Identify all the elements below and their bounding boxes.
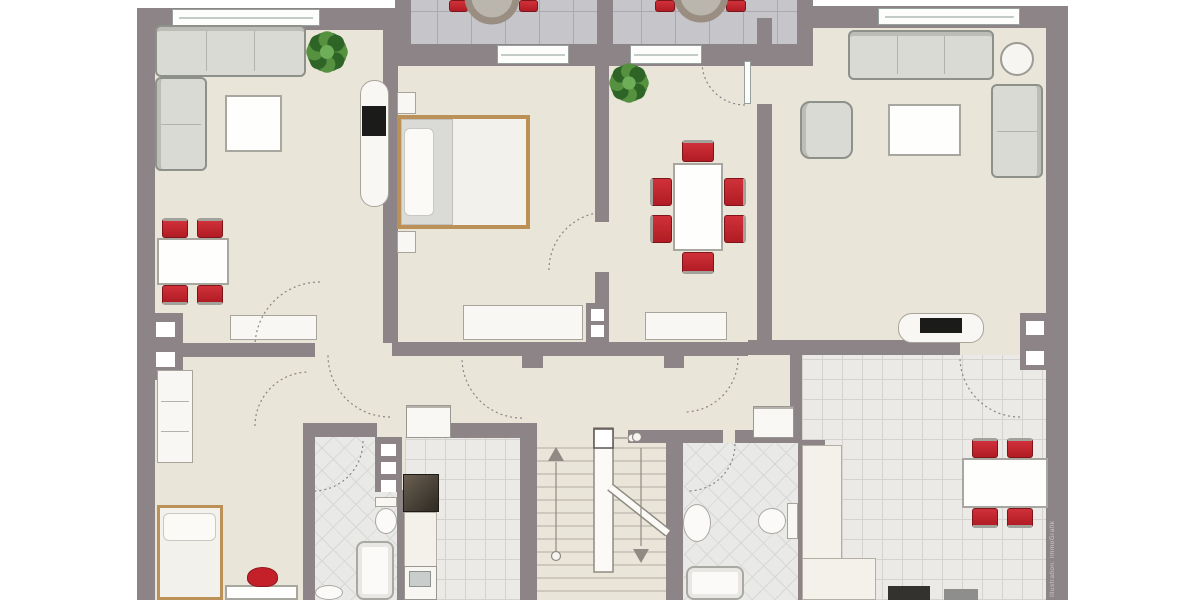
sink-bath-right: [683, 504, 711, 542]
wall-opening: [381, 462, 396, 474]
stove-left: [403, 474, 439, 512]
tv-cabinet-left: [360, 80, 389, 207]
dining-table-left: [157, 238, 229, 285]
kitchen-table-right: [962, 458, 1048, 508]
desk: [225, 585, 298, 600]
bedroom-dresser: [463, 305, 583, 340]
balcony-chair-red: [519, 0, 538, 12]
balcony-door-left: [497, 45, 569, 64]
toilet-right-bowl: [758, 508, 786, 534]
balcony-chair-red: [655, 0, 675, 12]
coffee-table-left: [225, 95, 282, 152]
wall: [303, 423, 315, 600]
chair-red: [1007, 508, 1033, 528]
wall: [664, 356, 684, 368]
wall: [595, 44, 609, 222]
chair-red: [650, 178, 672, 206]
wall: [137, 8, 155, 600]
chair-red: [197, 218, 223, 238]
counter-right-low: [802, 558, 876, 600]
chair-red: [197, 285, 223, 305]
sink-basin-left: [409, 571, 431, 587]
chair-red: [682, 140, 714, 162]
chair-red: [1007, 438, 1033, 458]
wall: [628, 430, 723, 443]
cushion-divider: [206, 31, 207, 71]
balcony-chair-red: [726, 0, 746, 12]
wall: [392, 342, 748, 356]
balcony-chair-red: [449, 0, 468, 12]
wall-opening: [156, 352, 175, 367]
appliance-gray: [944, 589, 978, 600]
cushion-divider: [161, 124, 201, 125]
sink-bath-left: [315, 585, 343, 600]
armchair: [800, 101, 853, 159]
chair-red: [724, 178, 746, 206]
window-top-left: [172, 9, 320, 26]
cushion-divider: [254, 31, 255, 71]
dining-table-center: [673, 163, 723, 251]
cushion-divider: [161, 431, 190, 432]
corner-sofa-side: [155, 77, 207, 171]
wall: [757, 18, 772, 60]
chair-red: [162, 218, 188, 238]
chair-red: [972, 508, 998, 528]
wall: [450, 423, 521, 438]
nightstand-top: [397, 92, 416, 114]
wall-opening: [591, 325, 604, 337]
wall: [748, 340, 793, 355]
wall: [757, 104, 772, 343]
bathtub-left: [356, 541, 394, 600]
loveseat-right: [991, 84, 1043, 178]
wall-opening: [381, 444, 396, 456]
watermark-text: Illustration: ImmoGrafik: [1049, 495, 1056, 597]
washing-machine-left: [406, 405, 451, 438]
single-bed-pillow: [163, 513, 216, 541]
washing-machine-right: [753, 406, 794, 438]
chair-red: [972, 438, 998, 458]
tv-right: [920, 318, 962, 333]
red-kettle: [247, 567, 278, 587]
oven-dark: [888, 586, 930, 600]
toilet-right-tank: [787, 503, 798, 539]
sideboard-dining: [645, 312, 727, 340]
chair-red: [650, 215, 672, 243]
wall-opening: [1026, 321, 1044, 335]
bed-pillow: [404, 128, 434, 216]
side-table-round: [1000, 42, 1034, 76]
wall: [303, 423, 377, 437]
wall: [522, 356, 543, 368]
floor-plan: Illustration: ImmoGrafik: [0, 0, 1200, 600]
cushion-divider: [944, 36, 945, 75]
tv-left: [362, 106, 386, 136]
corner-sofa-top: [155, 25, 306, 77]
wall-opening: [381, 480, 396, 492]
cushion-divider: [897, 36, 898, 75]
sideboard-left: [230, 315, 317, 340]
wall: [520, 423, 537, 600]
wall: [666, 432, 683, 600]
wall-opening: [591, 309, 604, 321]
tall-cabinet: [157, 370, 193, 463]
counter-left: [404, 512, 437, 568]
sofa-right: [848, 30, 994, 80]
wall-opening: [1026, 351, 1044, 365]
cushion-divider: [997, 131, 1037, 132]
window-top-right: [878, 8, 1020, 25]
coffee-table-right: [888, 104, 961, 156]
wall-opening: [156, 322, 175, 337]
toilet-left-tank: [375, 497, 397, 507]
nightstand-bottom: [397, 231, 416, 253]
chair-red: [682, 252, 714, 274]
cushion-divider: [161, 401, 190, 402]
chair-red: [724, 215, 746, 243]
shower-right: [686, 566, 744, 600]
chair-red: [162, 285, 188, 305]
toilet-left-bowl: [375, 508, 397, 534]
balcony-door-right: [630, 45, 702, 64]
door-leaf-dining: [744, 61, 751, 104]
